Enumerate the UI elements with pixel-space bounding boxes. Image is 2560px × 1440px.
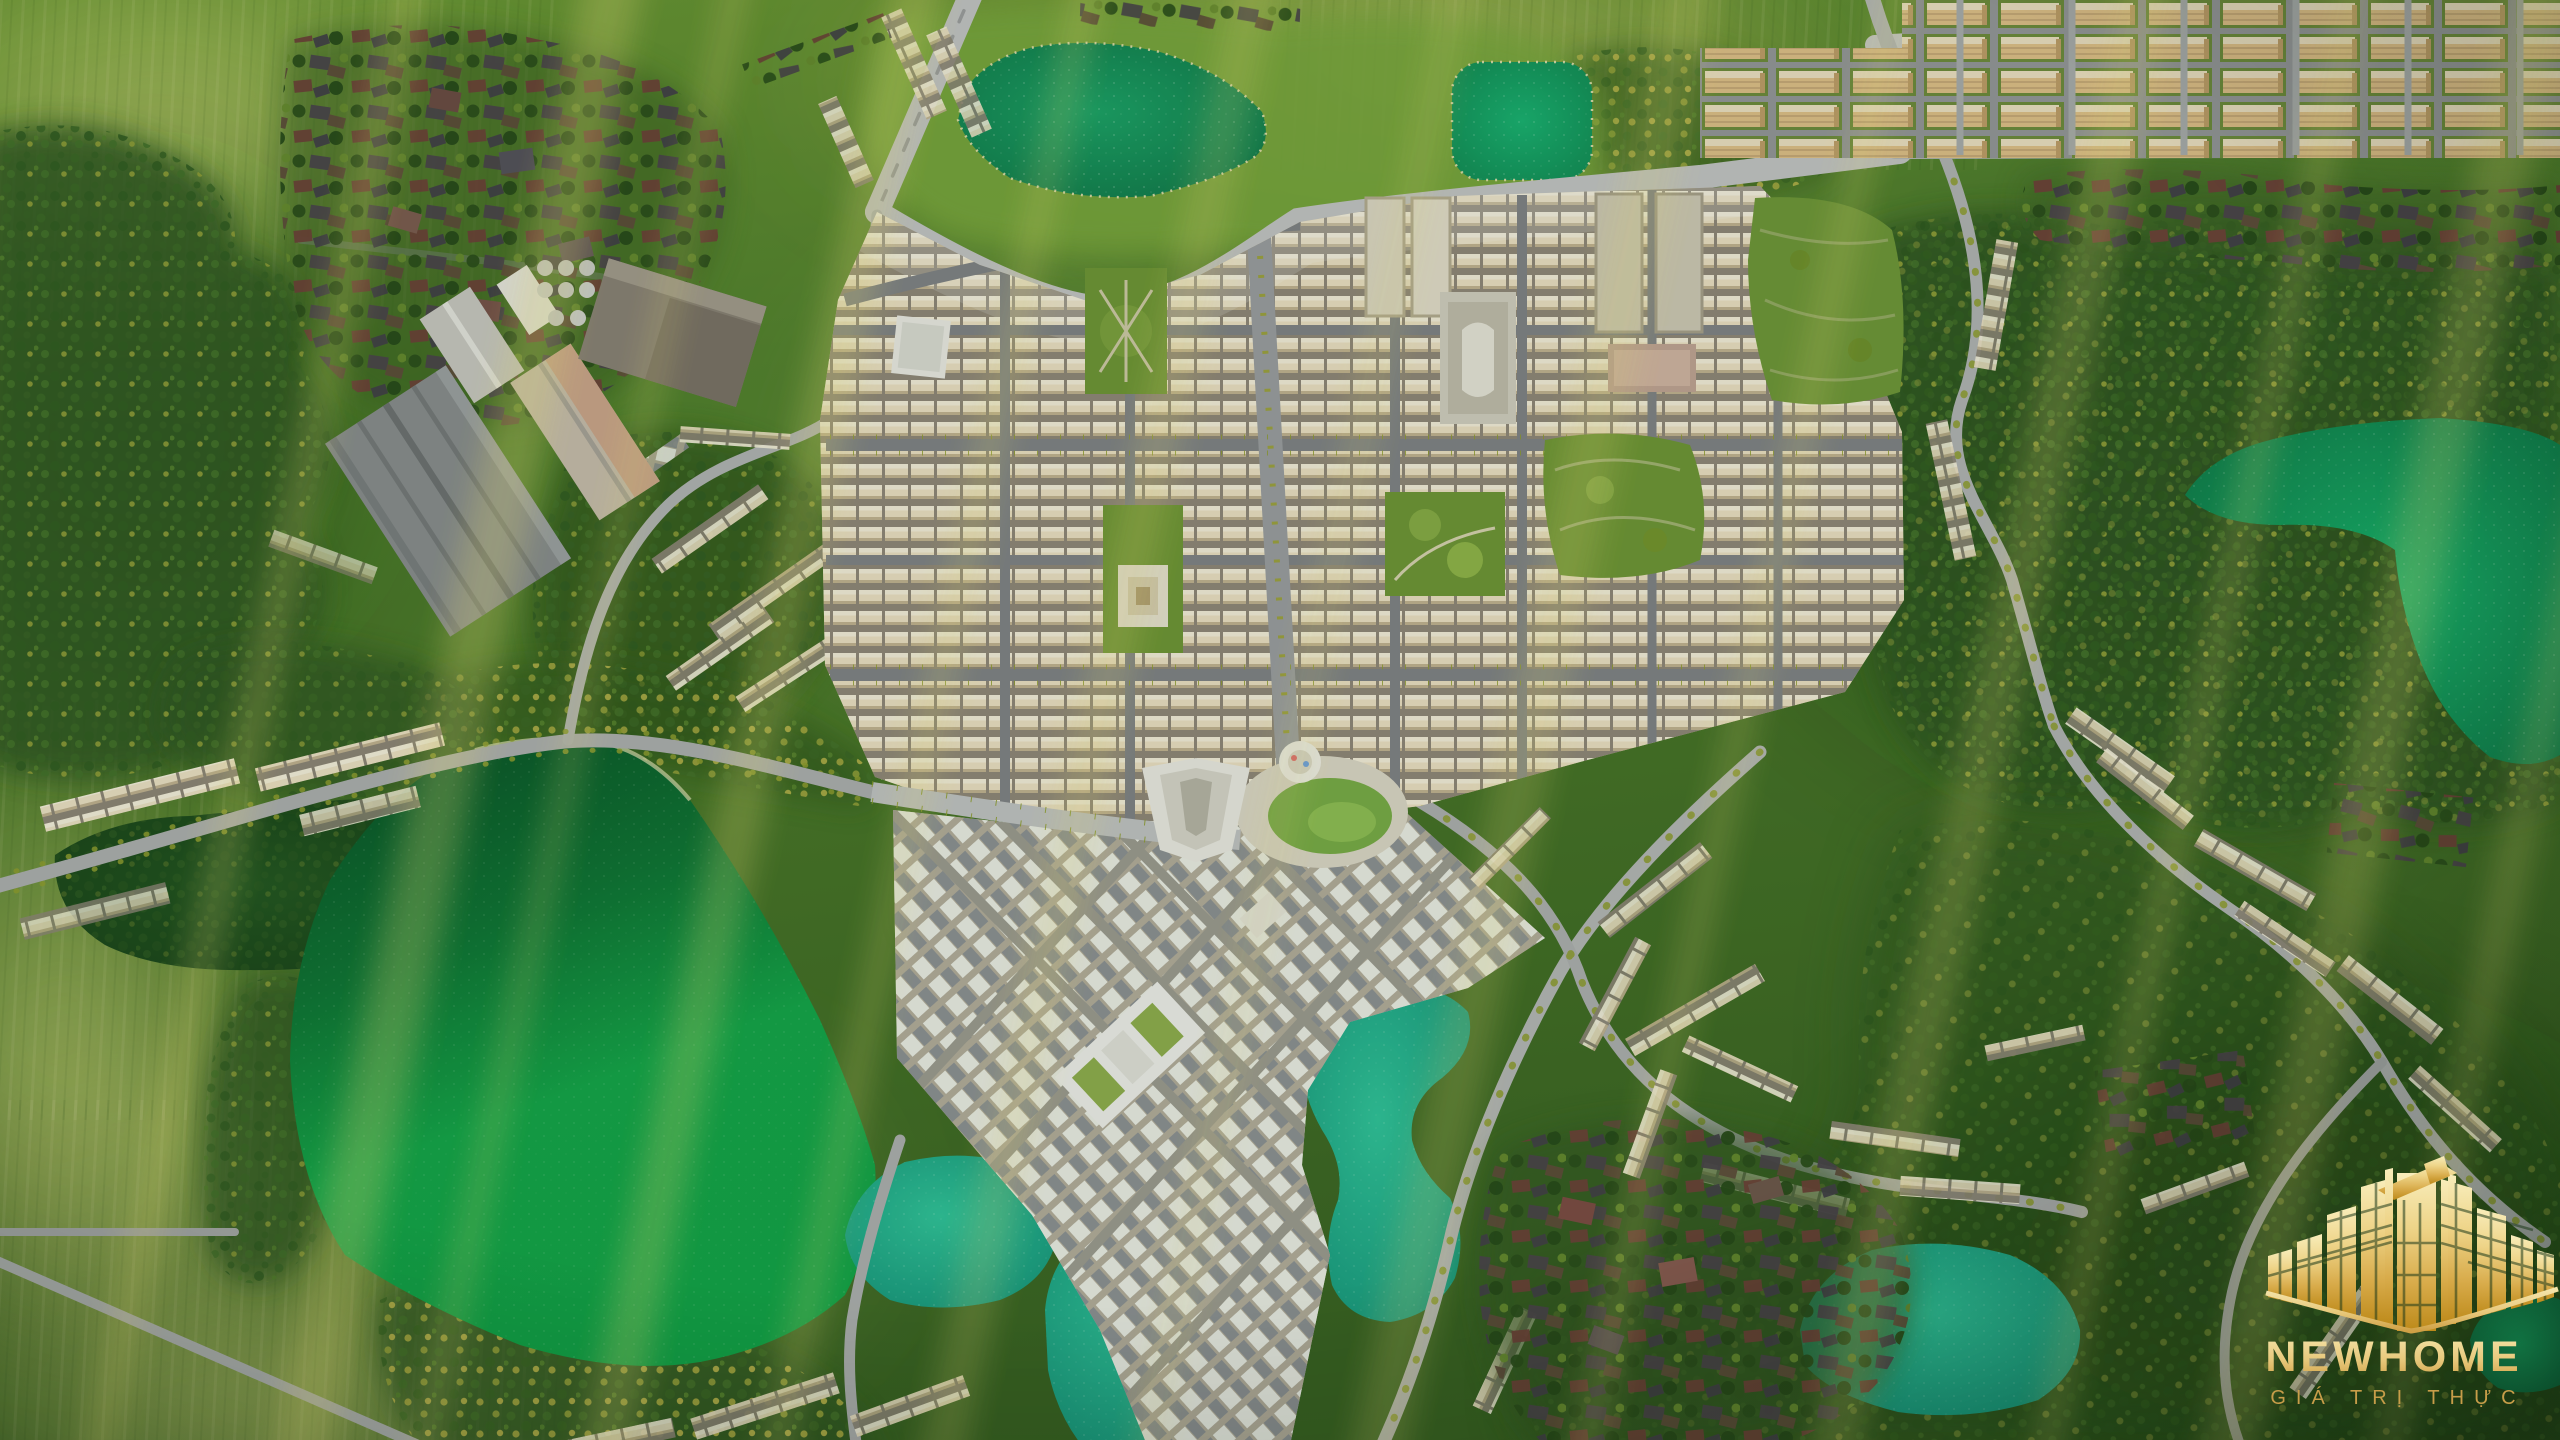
svg-text:GIÁ TRỊ THỰC: GIÁ TRỊ THỰC bbox=[2270, 1386, 2525, 1409]
svg-text:NEWHOME: NEWHOME bbox=[2265, 1333, 2522, 1381]
